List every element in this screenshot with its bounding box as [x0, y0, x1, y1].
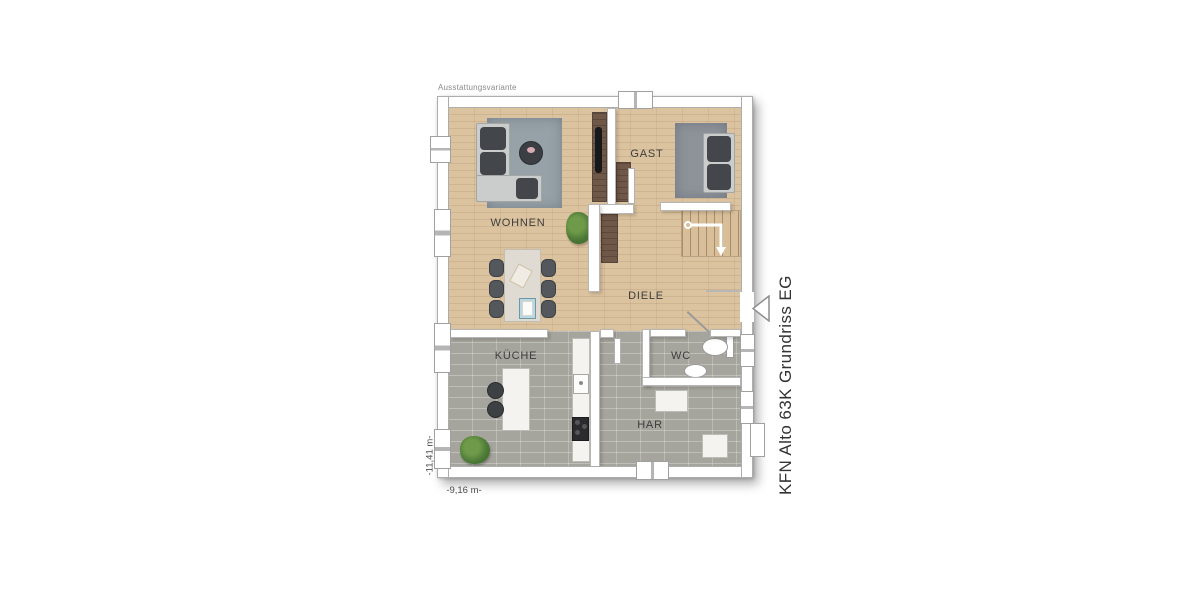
window-har-right — [740, 391, 754, 424]
window-kueche-1 — [434, 323, 451, 373]
wall-wc-top-right — [710, 329, 741, 337]
room-label-wc: WC — [671, 350, 691, 362]
window-wohnen-2 — [434, 209, 451, 257]
cooktop-burner — [575, 430, 580, 435]
kitchen-counter — [572, 338, 590, 462]
coffee-table — [519, 141, 543, 165]
entrance-arrow-icon — [752, 295, 770, 322]
plant-kueche — [460, 436, 490, 464]
stairs-direction-arrow-icon — [683, 217, 731, 259]
wall-diele-dining — [588, 204, 600, 292]
sofa-cushion — [707, 136, 731, 162]
washbasin — [684, 364, 707, 378]
wall-wc-top-left — [650, 329, 686, 337]
wall-exterior-bottom — [437, 466, 753, 478]
room-label-wohnen: WOHNEN — [491, 217, 546, 229]
dining-chair — [541, 280, 556, 298]
window-wc — [740, 334, 755, 367]
sofa-cushion — [480, 127, 506, 150]
dining-chair — [541, 300, 556, 318]
cooktop-burner — [575, 420, 580, 425]
room-label-har: HAR — [637, 419, 663, 431]
dining-chair — [489, 259, 504, 277]
sofa-cushion — [707, 164, 731, 190]
door-leaf-gast — [628, 168, 635, 204]
wall-stairwell — [660, 202, 731, 211]
window-wohnen-1 — [430, 136, 451, 163]
window-har-bottom — [636, 461, 669, 480]
dimension-width: -9,16 m- — [442, 485, 486, 496]
wall-exterior-top — [437, 96, 753, 108]
window-kueche-2 — [434, 429, 451, 469]
coffee-table-decor — [527, 147, 535, 153]
dining-chair — [489, 280, 504, 298]
bar-stool — [487, 382, 504, 399]
room-label-gast: GAST — [630, 148, 663, 160]
har-appliance — [655, 390, 688, 412]
wall-kueche-har — [590, 331, 600, 467]
sofa-cushion — [480, 152, 506, 175]
dining-chair — [541, 259, 556, 277]
wall-wohnen-gast — [607, 108, 616, 205]
chimney-block — [750, 423, 765, 457]
sofa-ottoman — [516, 178, 538, 199]
room-label-kueche: KÜCHE — [495, 350, 538, 362]
cooktop-burner — [582, 424, 587, 429]
window-gast — [618, 91, 653, 109]
tv-icon — [595, 127, 602, 173]
variant-caption: Ausstattungsvariante — [438, 83, 517, 92]
bar-stool — [487, 401, 504, 418]
dining-chair — [489, 300, 504, 318]
door-leaf-entrance — [706, 290, 740, 292]
wall-har-top — [600, 329, 614, 338]
kitchen-island — [502, 368, 530, 431]
room-label-diele: DIELE — [628, 290, 664, 302]
dimension-height: -11,41 m- — [425, 428, 436, 484]
wardrobe-diele — [601, 213, 618, 263]
wall-kueche-top — [450, 329, 548, 338]
faucet-icon — [579, 381, 583, 385]
toilet — [702, 338, 728, 356]
table-decor-paper — [522, 301, 533, 316]
plan-title: KFN Alto 63K Grundriss EG — [776, 285, 796, 495]
floor-plan-canvas: Ausstattungsvariante — [0, 0, 1200, 600]
har-appliance — [702, 434, 728, 458]
door-leaf-har — [614, 338, 621, 364]
wall-wc-bottom — [642, 377, 741, 386]
